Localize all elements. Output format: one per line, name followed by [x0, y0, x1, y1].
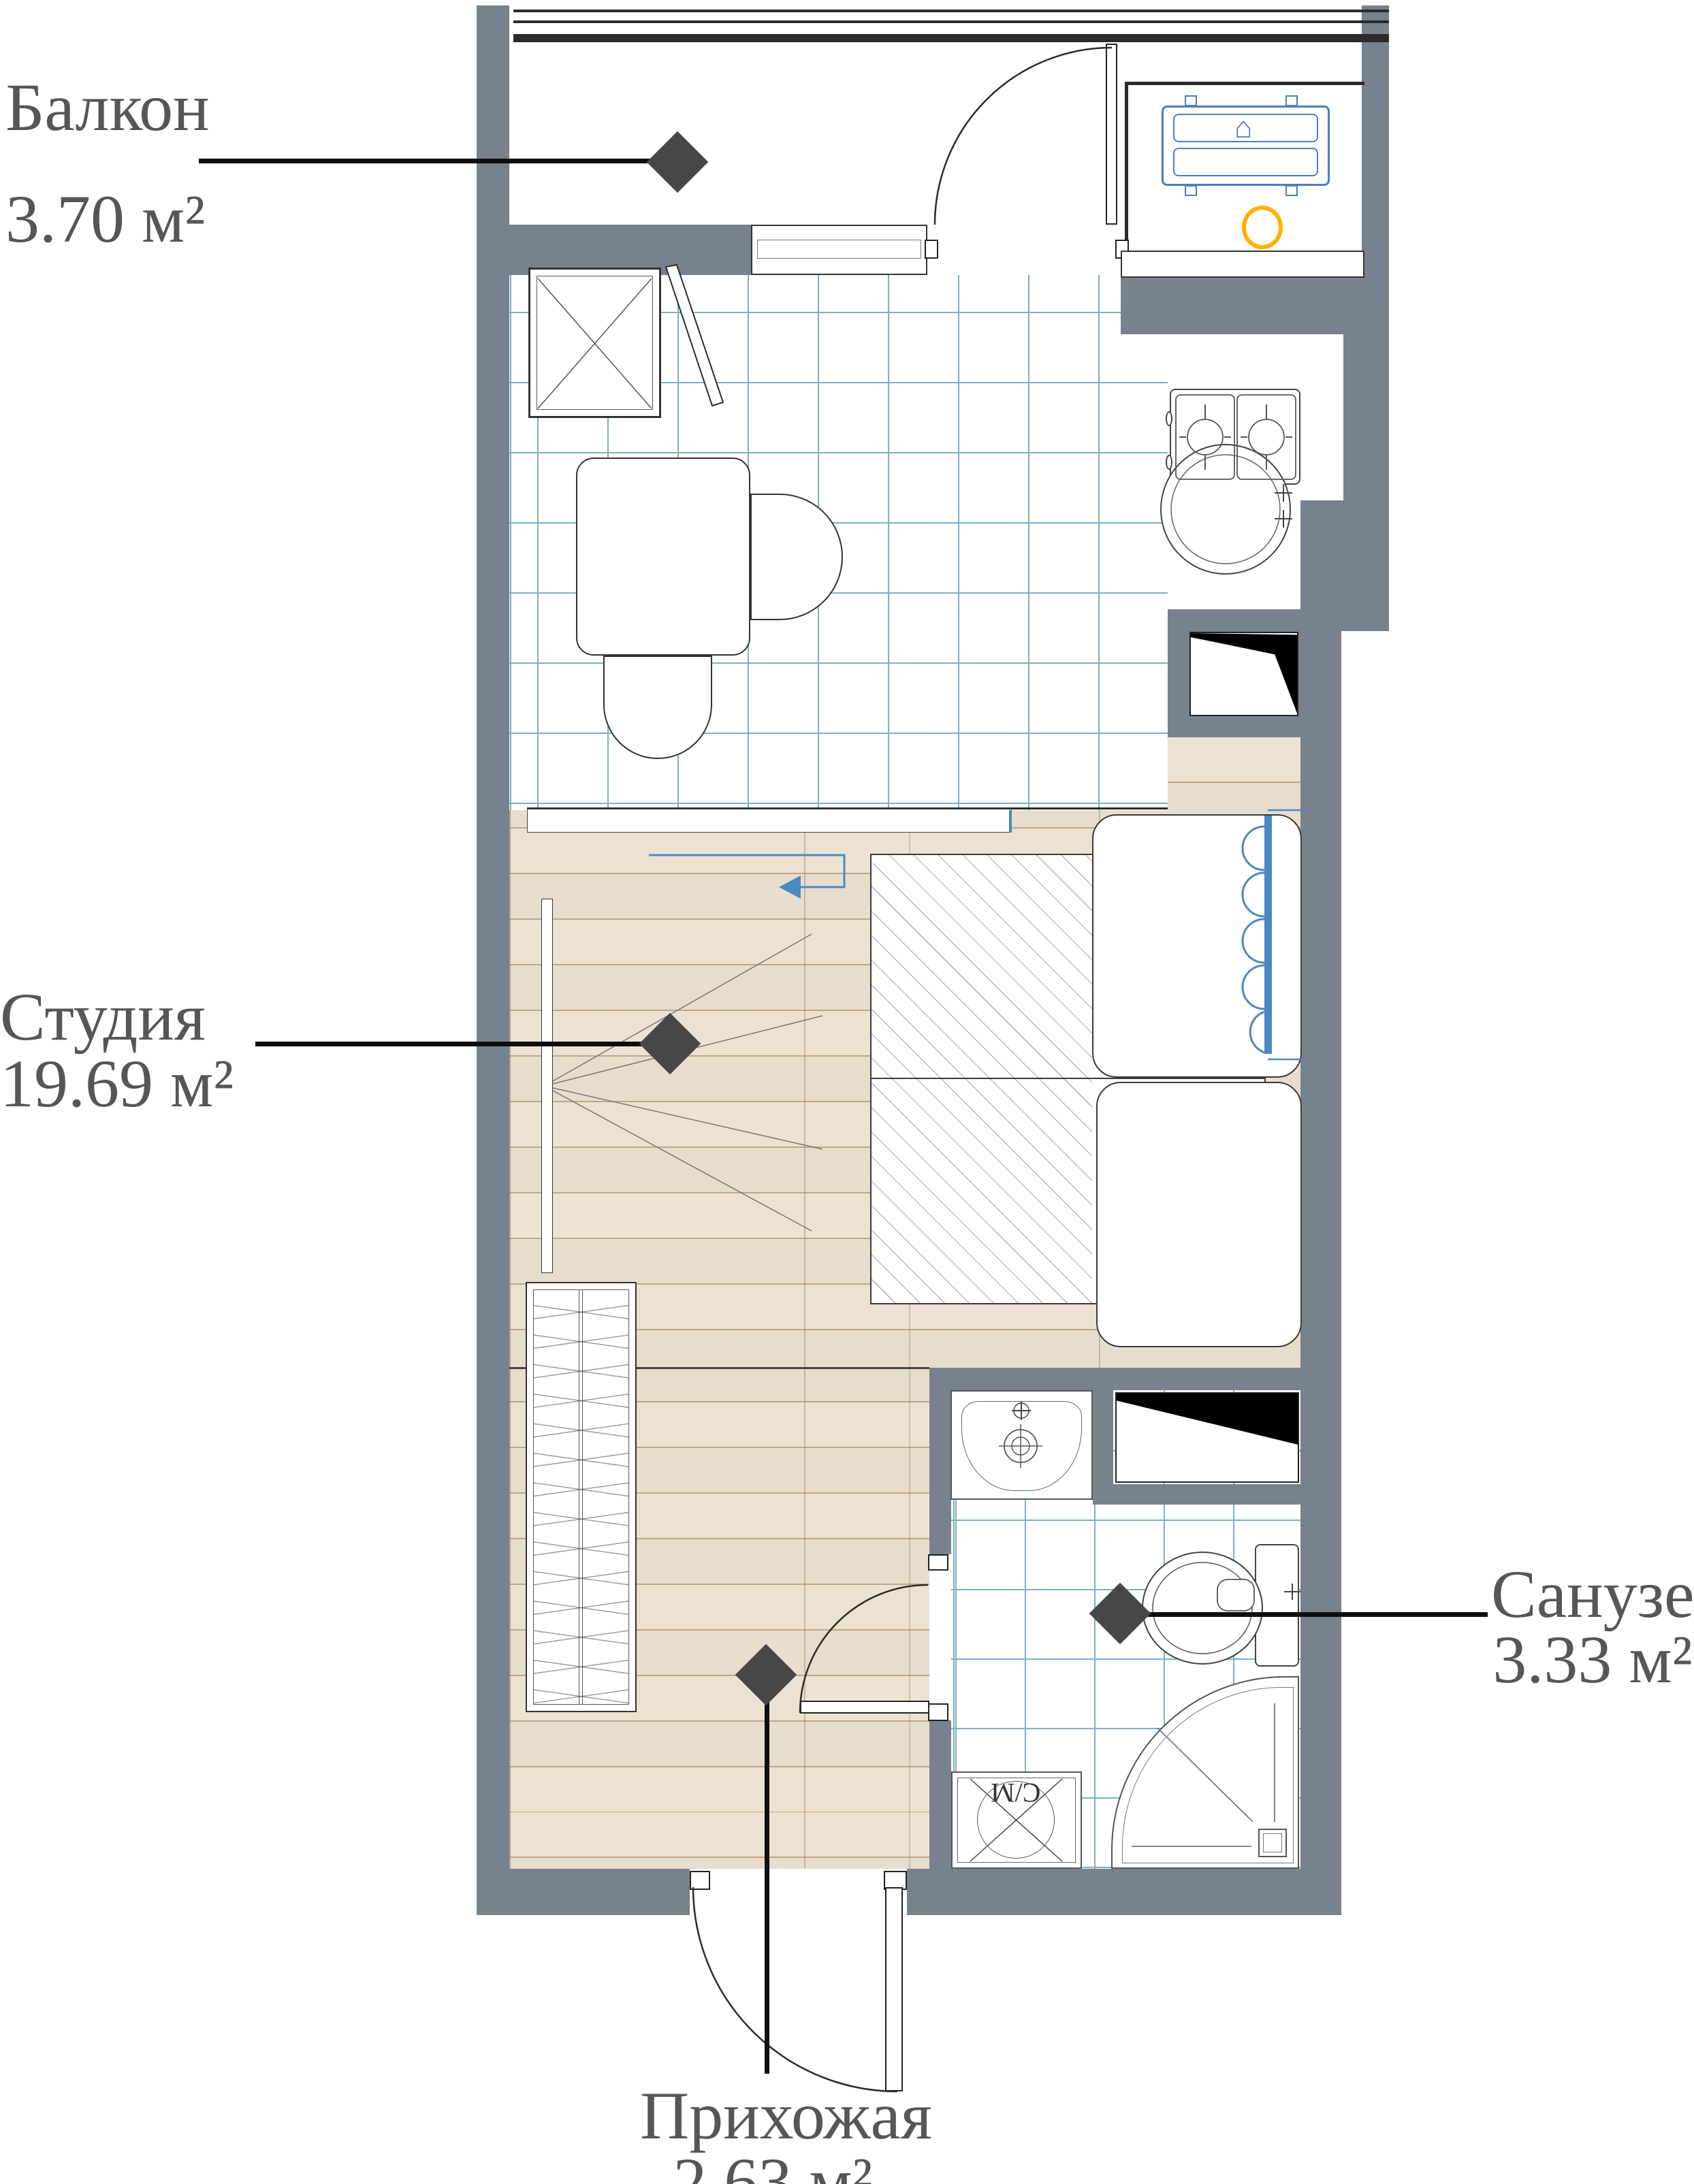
bed-mattress-divider [872, 1078, 1264, 1079]
room-label-balcony-area: 3.70 м² [5, 185, 203, 253]
room-label-bathroom-name: Санузел [1491, 1560, 1694, 1628]
balcony-door-leaf [1106, 44, 1117, 225]
ac-unit-panel-bottom [1173, 148, 1318, 176]
threshold-tick [1009, 810, 1012, 833]
bathroom-door-jamb-bottom [928, 1703, 948, 1721]
washing-machine-label: С/М [991, 1777, 1040, 1809]
balcony-railing-line-2 [513, 20, 1389, 23]
balcony-threshold [1121, 251, 1364, 278]
bathroom-vent-wedge [1117, 1394, 1298, 1481]
ac-unit: ⌂ [1162, 106, 1330, 186]
entrance-door-jamb-left [690, 1871, 710, 1890]
radiator [1264, 816, 1272, 1054]
ac-niche-wall-top [1125, 82, 1364, 85]
room-label-hallway-area: 2.63 м² [640, 2148, 906, 2184]
room-label-hallway-name: Прихожая [640, 2082, 906, 2150]
right-wall-step-block [1300, 500, 1389, 631]
kitchen-vent-niche [1189, 632, 1298, 716]
right-outer-wall-lower [1300, 631, 1341, 1915]
room-label-studio-name: Студия [0, 983, 197, 1051]
toilet-tank [1255, 1544, 1299, 1667]
bathroom-left-wall-lower [929, 1720, 951, 1869]
bathroom-sink-niche-divider [1093, 1390, 1113, 1505]
floor-plan: ⌂ [0, 0, 1694, 2184]
bed-mattress-hatched [872, 855, 1092, 1303]
leader-line-bathroom [1120, 1612, 1488, 1617]
balcony-window-glazing [757, 240, 921, 259]
ac-unit-tab-br [1285, 185, 1298, 196]
balcony-sill-block [1121, 278, 1389, 334]
ac-vent-icon: ⌂ [1234, 113, 1252, 143]
stove-knob-1 [1166, 411, 1172, 426]
wardrobe-rail [579, 1289, 583, 1705]
ac-niche-wall-left [1125, 82, 1128, 253]
ac-unit-tab-bl [1185, 185, 1197, 196]
stove [1170, 389, 1300, 485]
sofa-cushion-bottom [1096, 1082, 1302, 1347]
stove-knob-2 [1166, 455, 1172, 470]
bathroom-door-leaf [800, 1701, 929, 1714]
ac-unit-tab-tl [1185, 95, 1197, 106]
entrance-door-arc [693, 1887, 897, 2091]
entrance-door-leaf [885, 1887, 903, 2091]
kitchen-counter-bottom [1168, 500, 1298, 609]
leader-line-balcony [199, 159, 680, 163]
room-label-bathroom-area: 3.33 м² [1491, 1626, 1694, 1694]
bathroom-left-wall-upper [929, 1390, 951, 1554]
bottom-wall-right [907, 1869, 1341, 1915]
balcony-right-wall [1362, 5, 1389, 280]
balcony-door-arc [935, 48, 1112, 225]
kitchen-threshold-strip [527, 809, 1012, 833]
bathroom-vent-niche [1115, 1392, 1299, 1483]
room-label-studio-area: 19.69 м² [0, 1050, 197, 1118]
leader-line-studio [255, 1042, 671, 1046]
area-marker-balcony [647, 131, 709, 193]
bathroom-vent-niche-band [1113, 1484, 1300, 1505]
bathroom-top-wall [929, 1368, 1300, 1390]
kitchen-table [576, 457, 750, 656]
balcony-door-jamb-left [925, 240, 938, 259]
kitchen-vent-wedge [1191, 633, 1297, 715]
kitchen-vent-shaft-inner [537, 276, 653, 410]
bathroom-door-jamb-top [928, 1554, 948, 1571]
room-label-balcony-name: Балкон [5, 74, 203, 142]
balcony-railing-line-3 [513, 34, 1389, 42]
left-outer-wall [477, 5, 509, 1869]
shower-drain-inner [1263, 1833, 1282, 1852]
bottom-wall-left [477, 1869, 690, 1915]
ac-unit-tab-tr [1285, 95, 1298, 106]
balcony-railing-line-1 [513, 10, 1389, 12]
leader-line-hallway [765, 1675, 769, 2074]
water-outlet-circle [1242, 206, 1283, 249]
tv-panel [541, 899, 553, 1273]
